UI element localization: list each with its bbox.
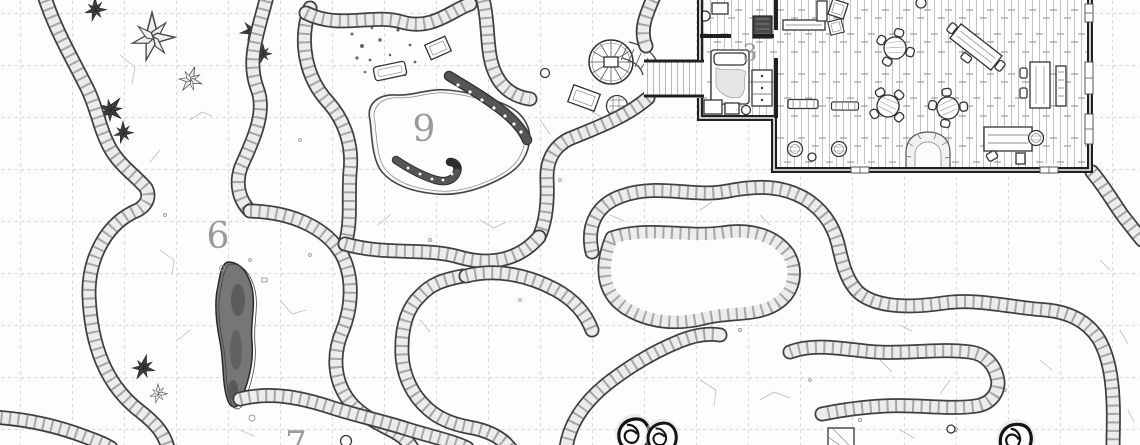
room-label-6: 6 <box>207 219 230 255</box>
crate-icon <box>828 19 844 35</box>
stone-hearth <box>906 132 950 168</box>
bench-icon <box>832 102 859 110</box>
dresser-icon <box>752 70 772 106</box>
barrel-icon <box>788 142 803 157</box>
map-canvas[interactable] <box>0 0 1140 445</box>
stool-icon <box>808 153 816 161</box>
walkway <box>644 60 704 97</box>
battle-map: 9 6 7 3 <box>0 0 1140 445</box>
side-table-icon <box>704 100 722 114</box>
chest-icon <box>725 103 739 114</box>
barrel-icon <box>832 142 847 157</box>
window-icon <box>1040 164 1058 176</box>
room-label-3: 3 <box>743 43 758 66</box>
pot-icon <box>341 436 352 445</box>
room-label-7: 7 <box>285 427 307 445</box>
window-icon <box>1083 114 1095 144</box>
bench-icon <box>788 100 818 109</box>
barrel-icon <box>1029 131 1044 146</box>
stool-icon <box>742 106 751 115</box>
window-icon <box>1083 4 1095 22</box>
room-label-9: 9 <box>413 112 436 148</box>
crate-icon <box>712 3 728 14</box>
pouch-icon <box>541 69 550 78</box>
stool-icon <box>916 0 926 8</box>
window-icon <box>1083 62 1095 94</box>
window-icon <box>851 164 869 176</box>
crate-icon <box>828 428 854 445</box>
